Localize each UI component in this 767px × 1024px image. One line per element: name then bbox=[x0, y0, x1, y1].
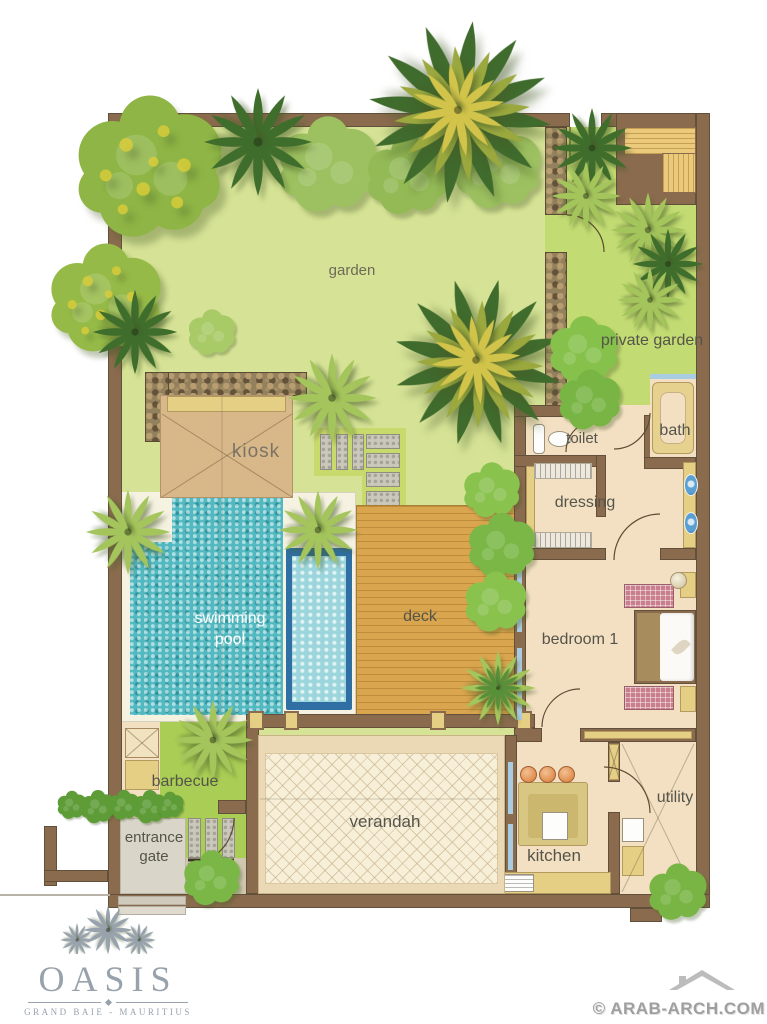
label-swimming-pool: swimming pool bbox=[178, 606, 282, 654]
oasis-logo: OASIS GRAND BAIE - MAURITIUS bbox=[18, 902, 198, 1020]
gate-paver bbox=[205, 818, 218, 858]
stepping-stone bbox=[336, 434, 348, 470]
dressing-bottom-wall bbox=[514, 548, 606, 560]
garden-stone-wall-lower bbox=[545, 252, 567, 415]
wash-basin bbox=[684, 474, 698, 496]
utility-shaft bbox=[609, 744, 619, 780]
label-dressing: dressing bbox=[538, 490, 632, 516]
nightstand bbox=[680, 686, 696, 712]
label-toilet: toilet bbox=[550, 428, 614, 450]
label-kiosk: kiosk bbox=[210, 438, 302, 466]
stepping-stone bbox=[366, 434, 400, 449]
label-kitchen: kitchen bbox=[506, 842, 602, 870]
bedroom-bench bbox=[624, 686, 674, 710]
bedside-lamp bbox=[670, 572, 687, 589]
stepping-stone bbox=[366, 472, 400, 487]
watermark: © ARAB-ARCH.COM bbox=[575, 968, 765, 1018]
label-private-garden: private garden bbox=[600, 318, 704, 364]
utility-appliance bbox=[622, 818, 644, 842]
hedge-icon bbox=[58, 791, 87, 819]
bedroom-north-wall bbox=[660, 548, 696, 560]
pillar bbox=[248, 711, 264, 730]
verandah-kitchen-wall bbox=[505, 735, 517, 894]
stepping-stone bbox=[366, 491, 400, 506]
barbecue-structure bbox=[125, 728, 159, 758]
boundary-line bbox=[0, 894, 110, 896]
garden-stone-wall-upper bbox=[545, 127, 567, 215]
bottom-wall bbox=[108, 894, 710, 908]
label-deck: deck bbox=[394, 604, 446, 630]
bedroom-wardrobe bbox=[584, 731, 692, 739]
kiosk-bench bbox=[167, 396, 286, 412]
logo-palm-trees-icon bbox=[33, 902, 183, 954]
bed-mattress bbox=[637, 613, 660, 681]
utility-window bbox=[656, 889, 692, 894]
stove bbox=[542, 812, 568, 840]
kitchen-stool bbox=[558, 766, 575, 783]
pillar bbox=[284, 711, 299, 730]
dressing-closet-rack bbox=[534, 463, 592, 479]
floor-plan: garden private garden kiosk toilet bath … bbox=[0, 0, 767, 1024]
label-utility: utility bbox=[638, 785, 712, 811]
label-barbecue: barbecue bbox=[138, 769, 232, 795]
logo-divider bbox=[28, 1000, 188, 1005]
kiosk-stone-wall-top bbox=[145, 372, 307, 396]
dressing-closet-rack bbox=[534, 532, 592, 548]
watermark-house-icon bbox=[667, 968, 737, 994]
bedroom-bench bbox=[624, 584, 674, 608]
logo-name: OASIS bbox=[18, 961, 198, 997]
corner-deck-side bbox=[662, 153, 696, 193]
toilet-right-wall-stub bbox=[596, 413, 606, 425]
bedroom-window bbox=[517, 648, 522, 720]
stepping-stone bbox=[366, 453, 400, 468]
pool-corner-step bbox=[118, 492, 172, 542]
bedroom-window bbox=[517, 562, 522, 632]
label-garden: garden bbox=[310, 258, 394, 284]
stepping-stone bbox=[352, 434, 364, 470]
top-wall-left bbox=[108, 113, 570, 127]
bedroom-south-wall-left bbox=[514, 728, 542, 742]
corner-deck-top bbox=[624, 127, 696, 155]
toilet-basin bbox=[533, 424, 545, 454]
stepping-stone bbox=[320, 434, 332, 470]
label-verandah: verandah bbox=[338, 809, 432, 835]
utility-cupboard bbox=[622, 846, 644, 876]
courtyard-wall-stub bbox=[218, 800, 246, 814]
label-entrance-gate: entrance gate bbox=[116, 824, 192, 870]
label-bedroom-1: bedroom 1 bbox=[532, 627, 628, 653]
kitchen-window bbox=[508, 762, 513, 814]
pool-shallow-lane bbox=[292, 556, 346, 702]
left-wall bbox=[108, 113, 122, 908]
gate-paver bbox=[222, 818, 235, 858]
label-bath: bath bbox=[648, 419, 702, 443]
fence-rail bbox=[44, 870, 108, 882]
wash-basin bbox=[684, 512, 698, 534]
bottom-wall-step bbox=[630, 908, 662, 922]
pillar bbox=[430, 711, 446, 730]
watermark-text: © ARAB-ARCH.COM bbox=[575, 999, 765, 1019]
logo-location: GRAND BAIE - MAURITIUS bbox=[18, 1007, 198, 1017]
kitchen-stool bbox=[539, 766, 556, 783]
kitchen-stool bbox=[520, 766, 537, 783]
